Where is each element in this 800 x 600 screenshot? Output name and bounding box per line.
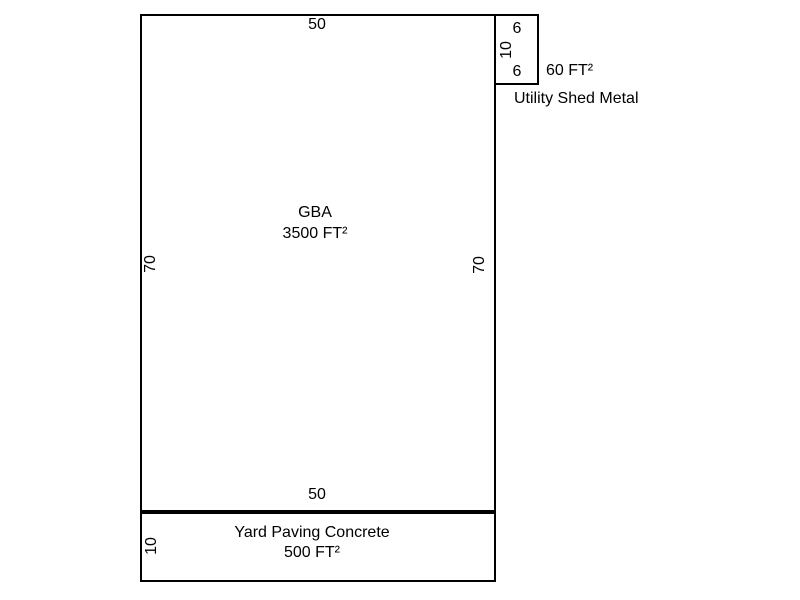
- shed-label: Utility Shed Metal: [514, 90, 639, 108]
- yard-label: Yard Paving Concrete: [234, 523, 389, 543]
- yard-area: 500 FT²: [234, 543, 389, 563]
- shed-dim-left: 10: [498, 41, 516, 59]
- gba-area: 3500 FT²: [283, 223, 348, 244]
- gba-dim-top: 50: [308, 16, 326, 34]
- gba-label: GBA: [283, 202, 348, 223]
- gba-dim-right: 70: [471, 256, 489, 274]
- gba-dim-bottom: 50: [308, 486, 326, 504]
- shed-dim-top: 6: [513, 20, 522, 38]
- gba-dim-left: 70: [142, 255, 160, 273]
- sketch-canvas: 50 50 70 70 GBA 3500 FT² 6 10 6 60 FT² U…: [0, 0, 800, 600]
- gba-text-block: GBA 3500 FT²: [283, 202, 348, 244]
- gba-outline: [140, 14, 496, 512]
- shed-dim-bottom: 6: [513, 63, 522, 81]
- shed-area: 60 FT²: [546, 62, 593, 80]
- yard-dim-left: 10: [143, 537, 161, 555]
- yard-text-block: Yard Paving Concrete 500 FT²: [234, 523, 389, 563]
